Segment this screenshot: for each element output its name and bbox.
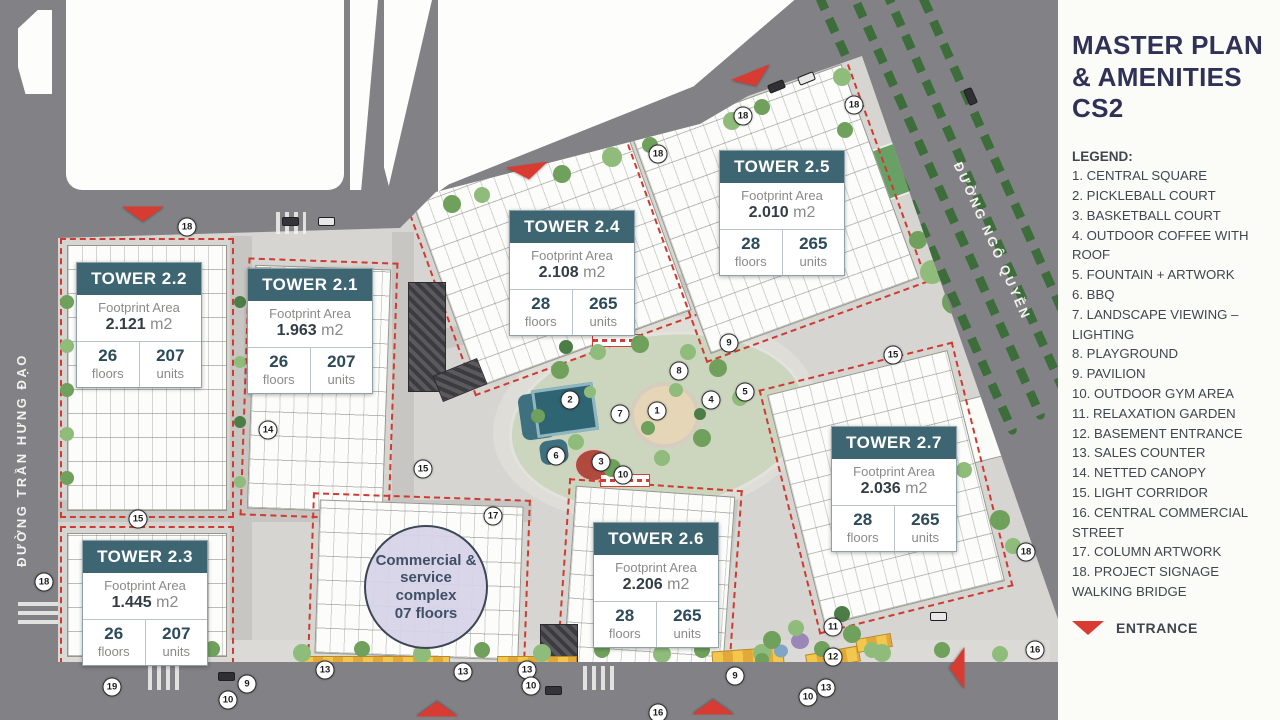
amenity-marker-17: 17: [484, 507, 503, 526]
tree: [590, 344, 606, 360]
footprint-unit: m2: [793, 204, 815, 221]
legend-item: 3. BASKETBALL COURT: [1072, 206, 1270, 226]
floors-label: floors: [720, 254, 782, 269]
tower-card-footprint: Footprint Area 2.036 m2: [832, 459, 956, 506]
tree: [553, 165, 571, 183]
footprint-label: Footprint Area: [85, 578, 205, 593]
amenity-marker-13: 13: [817, 679, 836, 698]
tree: [559, 340, 573, 354]
tower-card-units: 265 units: [572, 290, 635, 335]
amenity-marker-11: 11: [824, 618, 843, 637]
tree: [788, 620, 804, 636]
tree: [354, 641, 370, 657]
footprint-unit: m2: [150, 316, 172, 333]
amenity-marker-16: 16: [649, 704, 668, 720]
car: [318, 217, 335, 226]
tree: [551, 361, 569, 379]
footprint-value: 2.121: [106, 316, 146, 333]
legend-list: 1. CENTRAL SQUARE2. PICKLEBALL COURT3. B…: [1072, 166, 1270, 602]
floors-label: floors: [594, 626, 656, 641]
units-value: 265: [895, 510, 957, 530]
page-title: MASTER PLAN & AMENITIES CS2: [1072, 30, 1270, 125]
legend-item: 14. NETTED CANOPY: [1072, 463, 1270, 483]
legend-item: 1. CENTRAL SQUARE: [1072, 166, 1270, 186]
tree: [934, 642, 950, 658]
tower-card: TOWER 2.2 Footprint Area 2.121 m2 26 flo…: [76, 262, 202, 388]
units-label: units: [146, 644, 208, 659]
floors-label: floors: [77, 366, 139, 381]
units-label: units: [895, 530, 957, 545]
tower-card-floors: 26 floors: [248, 348, 310, 393]
amenity-marker-2: 2: [561, 391, 580, 410]
tower-card-footprint: Footprint Area 1.963 m2: [248, 301, 372, 348]
footprint-label: Footprint Area: [512, 248, 632, 263]
legend-item: 10. OUTDOOR GYM AREA: [1072, 384, 1270, 404]
floors-label: floors: [832, 530, 894, 545]
amenity-marker-18: 18: [649, 145, 668, 164]
tower-card: TOWER 2.1 Footprint Area 1.963 m2 26 flo…: [247, 268, 373, 394]
footprint-label: Footprint Area: [596, 560, 716, 575]
legend-item: 6. BBQ: [1072, 285, 1270, 305]
tree: [864, 642, 880, 658]
floors-value: 28: [720, 234, 782, 254]
master-plan-page: ĐƯỜNG TRẦN HƯNG ĐẠO ĐƯỜNG NGÔ QUYỀN Comm…: [0, 0, 1280, 720]
tree: [474, 187, 490, 203]
tree: [293, 644, 311, 662]
legend-item: 7. LANDSCAPE VIEWING – LIGHTING: [1072, 305, 1270, 345]
tower-card-floors: 28 floors: [832, 506, 894, 551]
tree: [837, 122, 853, 138]
legend-item: 11. RELAXATION GARDEN: [1072, 404, 1270, 424]
legend-item: 12. BASEMENT ENTRANCE: [1072, 424, 1270, 444]
units-label: units: [657, 626, 719, 641]
units-value: 265: [573, 294, 635, 314]
footprint-unit: m2: [156, 594, 178, 611]
amenity-marker-9: 9: [238, 675, 257, 694]
tree: [234, 476, 246, 488]
tower-card-title: TOWER 2.6: [594, 523, 718, 555]
legend-item: 18. PROJECT SIGNAGE: [1072, 562, 1270, 582]
footprint-label: Footprint Area: [250, 306, 370, 321]
legend-item: WALKING BRIDGE: [1072, 582, 1270, 602]
info-panel: MASTER PLAN & AMENITIES CS2 LEGEND: 1. C…: [1058, 0, 1280, 720]
amenity-marker-15: 15: [129, 510, 148, 529]
footprint-value: 1.445: [112, 594, 152, 611]
tower-card-units: 265 units: [782, 230, 845, 275]
tree: [234, 356, 246, 368]
tree: [693, 429, 711, 447]
footprint-value: 2.036: [861, 480, 901, 497]
legend-item: 2. PICKLEBALL COURT: [1072, 186, 1270, 206]
car: [545, 686, 562, 695]
amenity-marker-9: 9: [720, 334, 739, 353]
tree: [568, 434, 584, 450]
amenity-marker-19: 19: [103, 678, 122, 697]
tree: [709, 359, 727, 377]
tower-card-units: 265 units: [894, 506, 957, 551]
tower-card-title: TOWER 2.2: [77, 263, 201, 295]
amenity-marker-14: 14: [259, 421, 278, 440]
tree: [75, 204, 95, 224]
units-label: units: [573, 314, 635, 329]
tower-card-footprint: Footprint Area 2.010 m2: [720, 183, 844, 230]
floors-label: floors: [83, 644, 145, 659]
tree: [60, 471, 74, 485]
units-label: units: [783, 254, 845, 269]
amenity-marker-13: 13: [316, 661, 335, 680]
tree: [754, 99, 770, 115]
tree: [60, 339, 74, 353]
amenity-marker-10: 10: [799, 688, 818, 707]
footprint-unit: m2: [583, 264, 605, 281]
land-parcel: [384, 0, 432, 186]
tree: [833, 68, 851, 86]
tree: [474, 642, 490, 658]
tree: [631, 335, 649, 353]
street-label-tran-hung-dao: ĐƯỜNG TRẦN HƯNG ĐẠO: [14, 340, 34, 580]
units-label: units: [140, 366, 202, 381]
entrance-label: ENTRANCE: [1116, 620, 1198, 636]
tower-card-footprint: Footprint Area 2.206 m2: [594, 555, 718, 602]
tower-card-units: 207 units: [139, 342, 202, 387]
units-value: 207: [140, 346, 202, 366]
tower-card-footprint: Footprint Area 2.108 m2: [510, 243, 634, 290]
crosswalk: [18, 598, 58, 624]
floors-value: 28: [510, 294, 572, 314]
entrance-arrow: [692, 700, 734, 715]
amenity-marker-6: 6: [547, 447, 566, 466]
amenity-marker-15: 15: [884, 346, 903, 365]
tower-card-units: 207 units: [310, 348, 373, 393]
legend-item: 8. PLAYGROUND: [1072, 344, 1270, 364]
tree: [234, 416, 246, 428]
floors-label: floors: [510, 314, 572, 329]
tower-card: TOWER 2.6 Footprint Area 2.206 m2 28 flo…: [593, 522, 719, 648]
tree: [956, 462, 972, 478]
car: [930, 612, 947, 621]
tree: [990, 510, 1010, 530]
amenity-marker-18: 18: [845, 96, 864, 115]
amenity-marker-4: 4: [702, 391, 721, 410]
tree: [680, 344, 696, 360]
tree: [584, 386, 596, 398]
land-parcel: [18, 10, 52, 94]
amenity-marker-15: 15: [414, 460, 433, 479]
entrance-arrow: [950, 647, 965, 689]
floors-value: 26: [248, 352, 310, 372]
tower-card-footprint: Footprint Area 1.445 m2: [83, 573, 207, 620]
floors-value: 26: [83, 624, 145, 644]
legend-item: 16. CENTRAL COMMERCIAL STREET: [1072, 503, 1270, 543]
amenity-marker-10: 10: [522, 677, 541, 696]
units-value: 207: [311, 352, 373, 372]
legend-item: 5. FOUNTAIN + ARTWORK: [1072, 265, 1270, 285]
tree: [60, 295, 74, 309]
footprint-label: Footprint Area: [79, 300, 199, 315]
floors-value: 26: [77, 346, 139, 366]
car: [282, 217, 299, 226]
footprint-unit: m2: [667, 576, 689, 593]
amenity-marker-12: 12: [824, 648, 843, 667]
footprint-value: 2.010: [749, 204, 789, 221]
tree: [202, 209, 218, 225]
footprint-label: Footprint Area: [834, 464, 954, 479]
tower-card: TOWER 2.4 Footprint Area 2.108 m2 28 flo…: [509, 210, 635, 336]
amenity-marker-18: 18: [1017, 543, 1036, 562]
tower-card-floors: 26 floors: [77, 342, 139, 387]
legend-item: 4. OUTDOOR COFFEE WITH ROOF: [1072, 226, 1270, 266]
floors-value: 28: [594, 606, 656, 626]
footprint-value: 2.108: [539, 264, 579, 281]
tower-card-title: TOWER 2.4: [510, 211, 634, 243]
units-value: 207: [146, 624, 208, 644]
units-value: 265: [657, 606, 719, 626]
tree: [992, 646, 1008, 662]
tower-card-title: TOWER 2.3: [83, 541, 207, 573]
tree: [443, 195, 461, 213]
legend-item: 15. LIGHT CORRIDOR: [1072, 483, 1270, 503]
tower-card-units: 207 units: [145, 620, 208, 665]
footprint-label: Footprint Area: [722, 188, 842, 203]
legend-item: 13. SALES COUNTER: [1072, 443, 1270, 463]
tree: [669, 383, 683, 397]
amenity-marker-18: 18: [178, 218, 197, 237]
tower-card-title: TOWER 2.5: [720, 151, 844, 183]
entrance-legend: ENTRANCE: [1072, 620, 1270, 636]
amenity-marker-18: 18: [35, 573, 54, 592]
tree: [694, 408, 706, 420]
land-parcel: [350, 0, 378, 190]
tree: [531, 409, 545, 423]
tower-card-units: 265 units: [656, 602, 719, 647]
footprint-value: 2.206: [623, 576, 663, 593]
legend-item: 17. COLUMN ARTWORK: [1072, 542, 1270, 562]
amenity-marker-1: 1: [648, 402, 667, 421]
commercial-complex-name: Commercial & service complex: [370, 552, 482, 605]
tower-card-floors: 28 floors: [510, 290, 572, 335]
tower-card: TOWER 2.5 Footprint Area 2.010 m2 28 flo…: [719, 150, 845, 276]
legend-heading: LEGEND:: [1072, 149, 1270, 164]
tree: [763, 631, 781, 649]
amenity-marker-5: 5: [736, 383, 755, 402]
tree: [755, 653, 769, 667]
entrance-arrow: [122, 207, 164, 222]
tower-card-footprint: Footprint Area 2.121 m2: [77, 295, 201, 342]
land-parcel: [66, 0, 344, 190]
crosswalk: [148, 666, 180, 690]
crosswalk: [583, 666, 615, 690]
amenity-marker-9: 9: [726, 667, 745, 686]
tree: [234, 296, 246, 308]
tree: [533, 644, 551, 662]
commercial-complex-floors: 07 floors: [395, 605, 458, 623]
amenity-marker-8: 8: [670, 362, 689, 381]
tree: [654, 450, 670, 466]
tower-card: TOWER 2.3 Footprint Area 1.445 m2 26 flo…: [82, 540, 208, 666]
tower-card-floors: 28 floors: [594, 602, 656, 647]
tree: [641, 421, 655, 435]
tree: [60, 383, 74, 397]
amenity-marker-10: 10: [219, 691, 238, 710]
tower-card-title: TOWER 2.1: [248, 269, 372, 301]
floors-label: floors: [248, 372, 310, 387]
entrance-arrow: [416, 702, 458, 717]
entrance-arrow-icon: [1072, 621, 1104, 635]
footprint-unit: m2: [905, 480, 927, 497]
amenity-marker-10: 10: [614, 466, 633, 485]
commercial-complex-label: Commercial & service complex 07 floors: [364, 525, 488, 649]
amenity-marker-18: 18: [734, 107, 753, 126]
tree: [602, 147, 622, 167]
tree: [843, 625, 861, 643]
tree: [60, 427, 74, 441]
footprint-value: 1.963: [277, 322, 317, 339]
floors-value: 28: [832, 510, 894, 530]
units-value: 265: [783, 234, 845, 254]
amenity-marker-16: 16: [1026, 641, 1045, 660]
car: [218, 672, 235, 681]
footprint-unit: m2: [321, 322, 343, 339]
tower-card-floors: 28 floors: [720, 230, 782, 275]
units-label: units: [311, 372, 373, 387]
amenity-marker-3: 3: [592, 453, 611, 472]
site-map: ĐƯỜNG TRẦN HƯNG ĐẠO ĐƯỜNG NGÔ QUYỀN Comm…: [0, 0, 1060, 720]
legend-item: 9. PAVILION: [1072, 364, 1270, 384]
amenity-marker-13: 13: [454, 663, 473, 682]
tower-card-floors: 26 floors: [83, 620, 145, 665]
tower-card: TOWER 2.7 Footprint Area 2.036 m2 28 flo…: [831, 426, 957, 552]
amenity-marker-7: 7: [611, 405, 630, 424]
tower-card-title: TOWER 2.7: [832, 427, 956, 459]
